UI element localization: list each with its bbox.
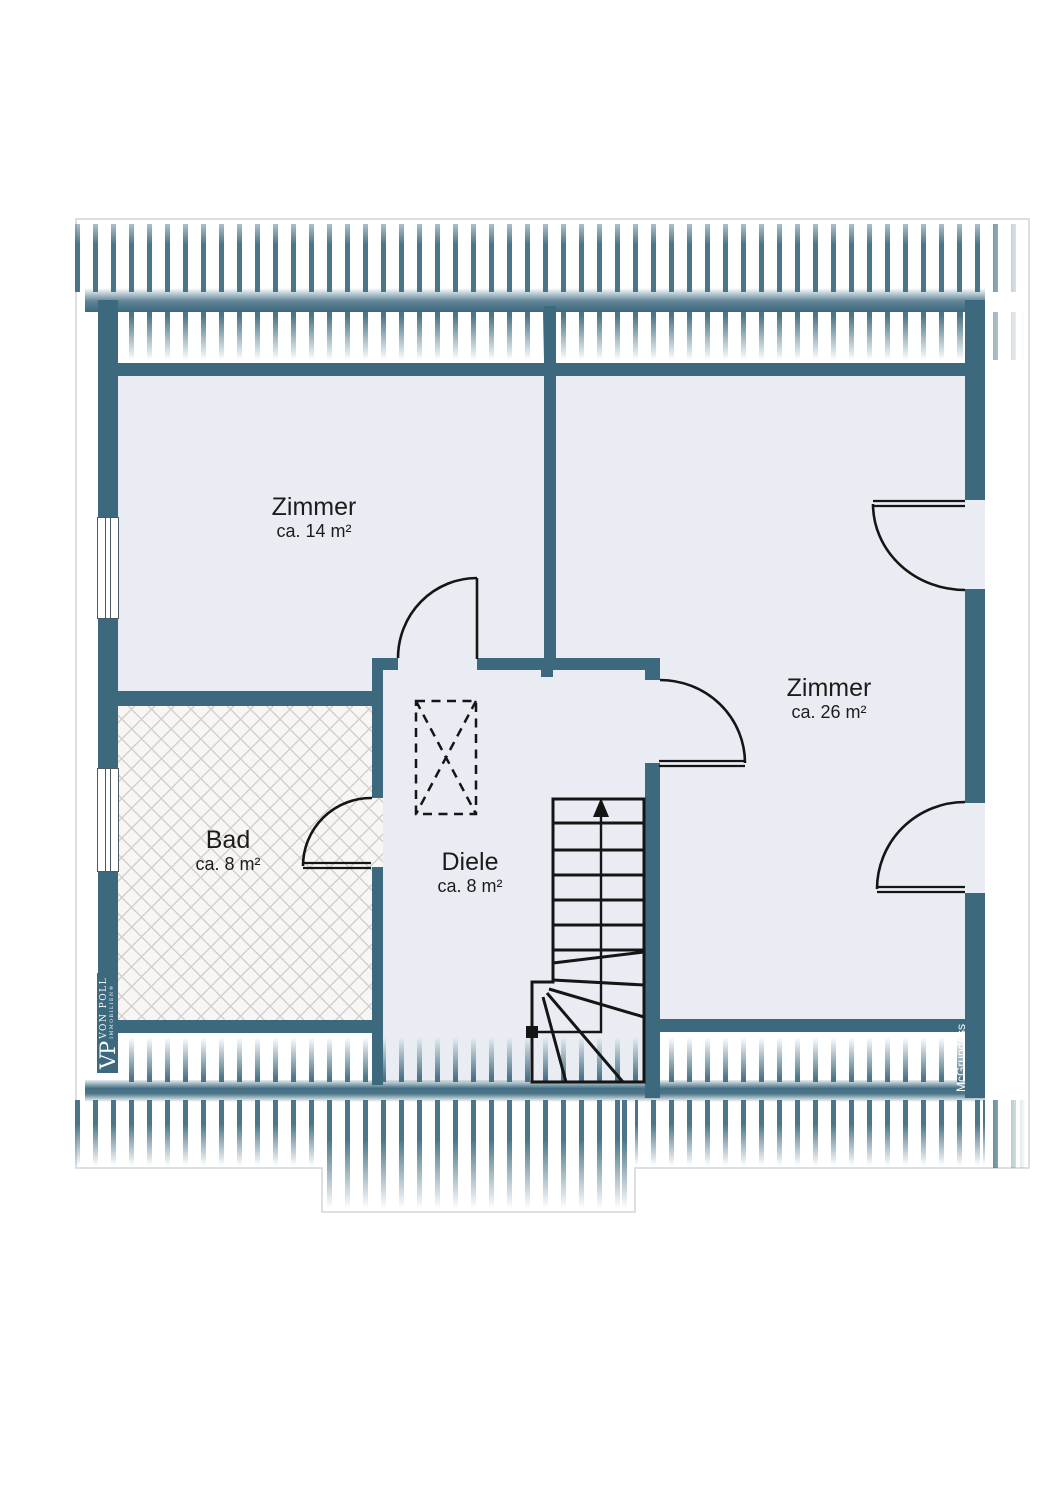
- room-label-zimmer14: Zimmer ca. 14 m²: [272, 493, 357, 543]
- stair-start-marker: [526, 1026, 538, 1038]
- von-poll-logo-text: VP VON POLL IMMOBILIEN®: [98, 973, 118, 1073]
- skylight-dashed-outline: [416, 701, 476, 814]
- room-area: ca. 26 m²: [787, 702, 872, 724]
- door-swing-zimmer14: [398, 578, 477, 659]
- door-swing-balcony-upper: [873, 501, 965, 590]
- stair-winder-treads: [543, 952, 644, 1082]
- vp-monogram-icon: VP: [96, 1042, 120, 1069]
- plan-symbols: [0, 0, 1060, 1500]
- room-label-zimmer26: Zimmer ca. 26 m²: [787, 674, 872, 724]
- door-swing-balcony-lower: [877, 802, 965, 892]
- room-name: Bad: [195, 826, 260, 854]
- brand-name: VON POLL: [100, 977, 109, 1039]
- stair-treads: [553, 823, 644, 950]
- room-label-bad: Bad ca. 8 m²: [195, 826, 260, 876]
- door-swing-zimmer26: [659, 680, 745, 766]
- stair-walking-line: [538, 813, 601, 1032]
- room-name: Zimmer: [272, 493, 357, 521]
- room-name: Zimmer: [787, 674, 872, 702]
- watermark-mcgrundriss: McGrundriss: [954, 1024, 968, 1092]
- room-name: Diele: [437, 848, 502, 876]
- floor-plan: Zimmer ca. 14 m² Zimmer ca. 26 m² Bad ca…: [0, 0, 1060, 1500]
- brand-subtitle: IMMOBILIEN®: [110, 977, 115, 1039]
- door-swing-bad: [303, 798, 372, 868]
- room-area: ca. 8 m²: [437, 876, 502, 898]
- staircase: [532, 799, 644, 1082]
- room-area: ca. 8 m²: [195, 854, 260, 876]
- room-label-diele: Diele ca. 8 m²: [437, 848, 502, 898]
- stair-up-arrow-icon: [593, 798, 609, 817]
- room-area: ca. 14 m²: [272, 521, 357, 543]
- von-poll-logo: VP VON POLL IMMOBILIEN®: [97, 973, 118, 1073]
